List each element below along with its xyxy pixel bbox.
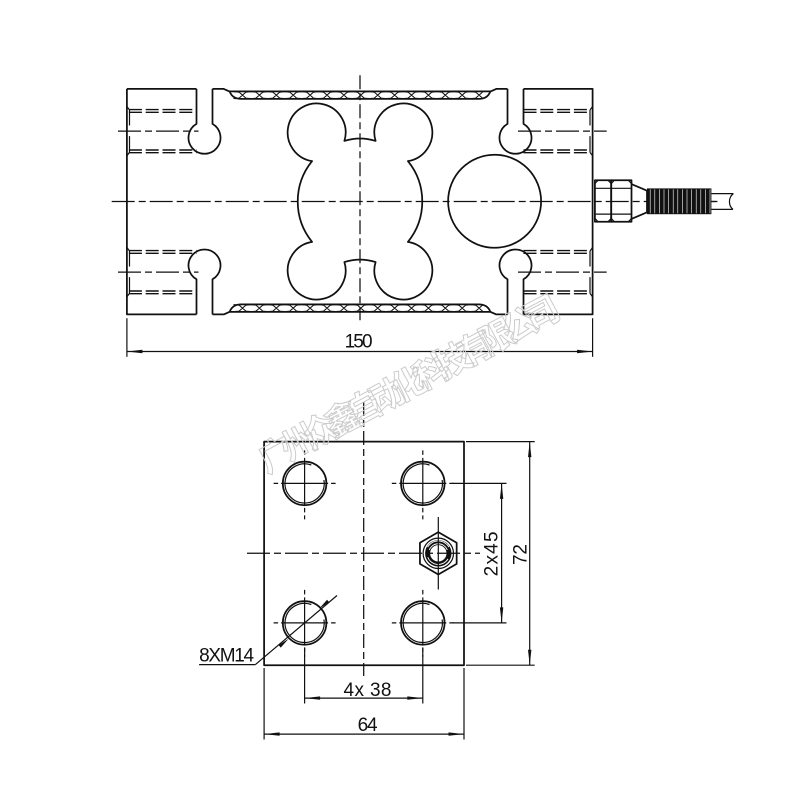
svg-text:8XM14: 8XM14 (199, 646, 254, 667)
svg-text:72: 72 (511, 544, 532, 565)
svg-text:64: 64 (358, 715, 378, 736)
svg-text:2x45: 2x45 (482, 531, 503, 576)
svg-text:150: 150 (345, 332, 373, 353)
svg-text:4x 38: 4x 38 (344, 680, 392, 701)
